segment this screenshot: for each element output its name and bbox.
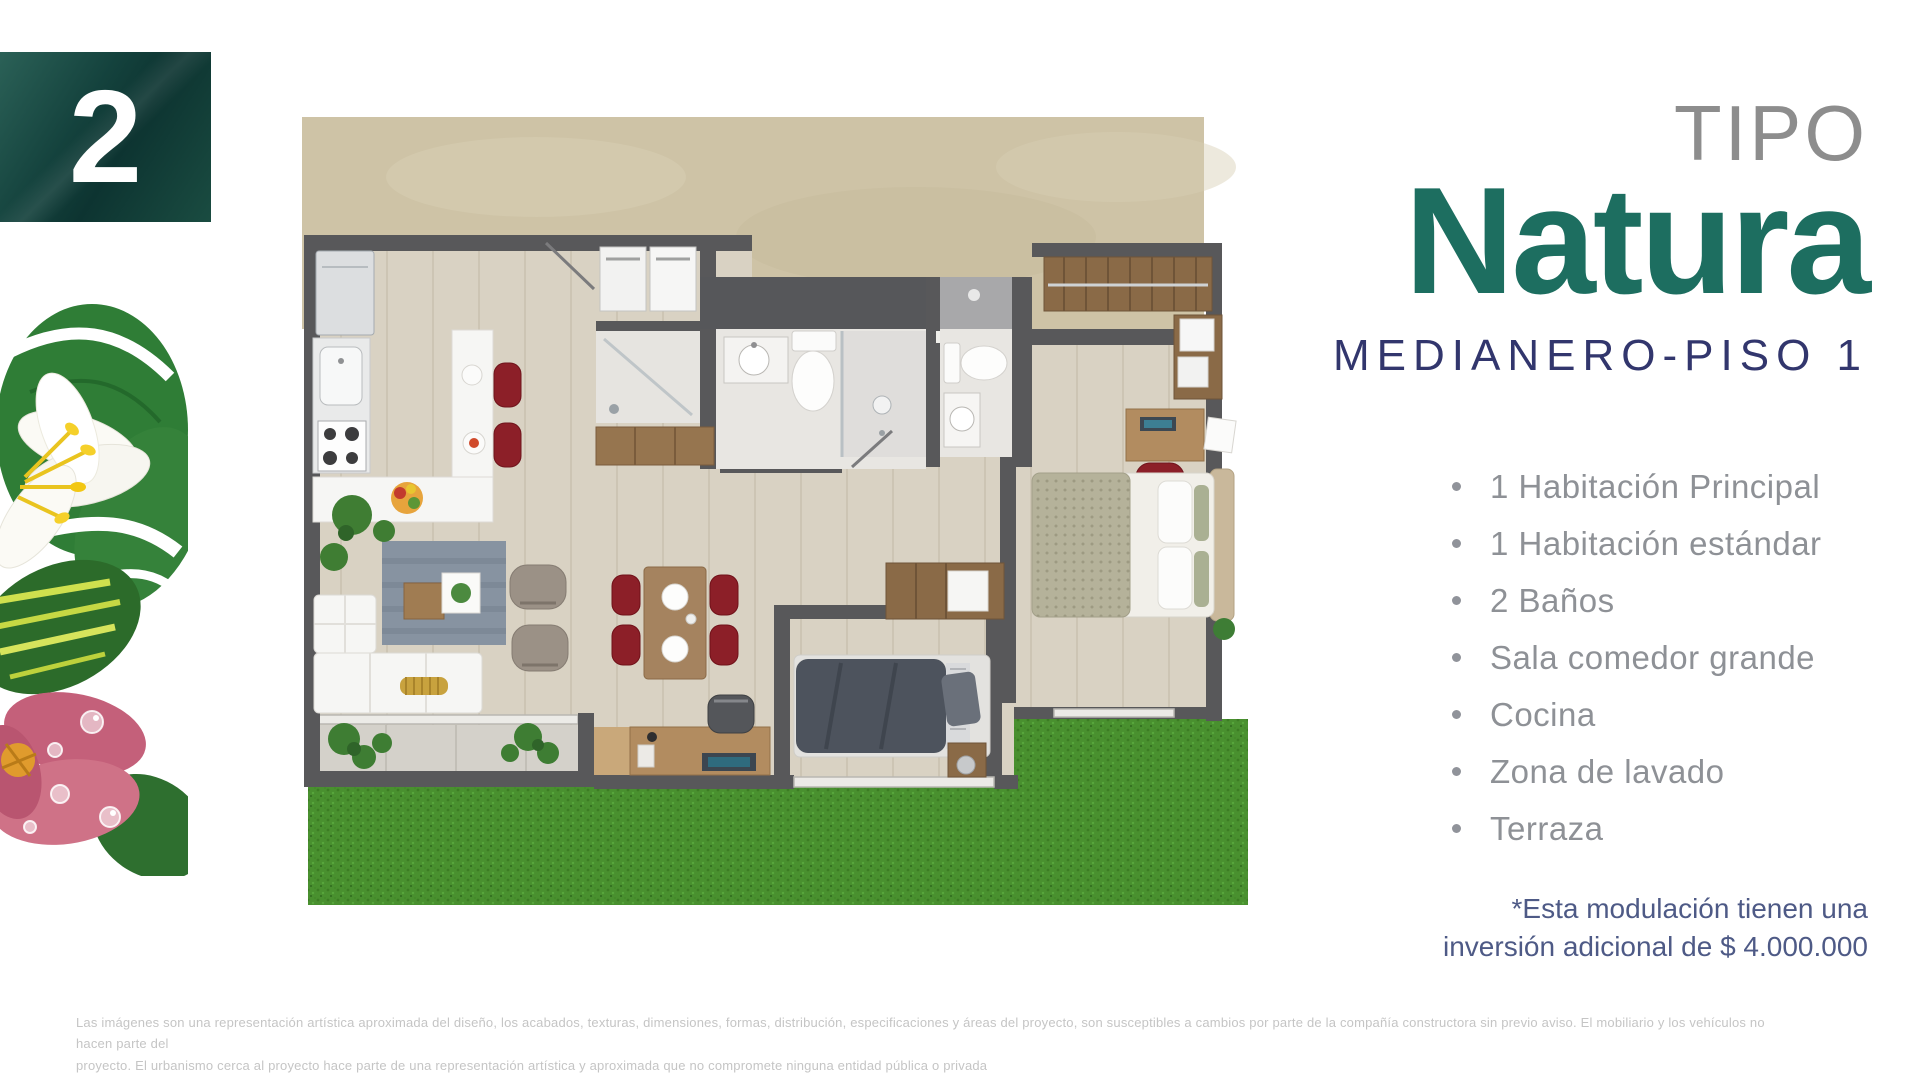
feature-label: 1 Habitación Principal bbox=[1490, 468, 1820, 506]
feature-label: Terraza bbox=[1490, 810, 1604, 848]
slide-number: 2 bbox=[69, 71, 142, 203]
pink-flower bbox=[0, 680, 188, 876]
feature-label: 2 Baños bbox=[1490, 582, 1615, 620]
feature-item: 1 Habitación Principal bbox=[1452, 458, 1822, 515]
note-line-1: *Esta modulación tienen una bbox=[1443, 890, 1868, 928]
feature-label: Cocina bbox=[1490, 696, 1596, 734]
hall-cabinet bbox=[596, 427, 714, 465]
feature-list: 1 Habitación Principal 1 Habitación está… bbox=[1452, 458, 1822, 857]
title-block: TIPO Natura MEDIANERO-PISO 1 bbox=[1333, 94, 1868, 381]
note-line-2: inversión adicional de $ 4.000.000 bbox=[1443, 928, 1868, 966]
flower-illustration bbox=[0, 282, 188, 876]
slide: { "badge": { "number": "2" }, "title": {… bbox=[0, 0, 1920, 1080]
bullet-icon bbox=[1452, 824, 1461, 833]
bullet-icon bbox=[1452, 767, 1461, 776]
bathroom-1 bbox=[716, 329, 926, 469]
feature-item: 2 Baños bbox=[1452, 572, 1822, 629]
disclaimer-line-1: Las imágenes son una representación artí… bbox=[76, 1012, 1776, 1055]
bullet-icon bbox=[1452, 596, 1461, 605]
shower-room bbox=[596, 331, 700, 423]
disclaimer-line-2: proyecto. El urbanismo cerca al proyecto… bbox=[76, 1055, 1776, 1076]
feature-label: Zona de lavado bbox=[1490, 753, 1725, 791]
feature-label: Sala comedor grande bbox=[1490, 639, 1815, 677]
bullet-icon bbox=[1452, 482, 1461, 491]
slide-number-badge: 2 bbox=[0, 52, 211, 222]
title-name: Natura bbox=[1333, 164, 1868, 319]
title-subtitle: MEDIANERO-PISO 1 bbox=[1333, 331, 1868, 381]
floor-plan-image bbox=[296, 117, 1254, 905]
feature-item: 1 Habitación estándar bbox=[1452, 515, 1822, 572]
feature-label: 1 Habitación estándar bbox=[1490, 525, 1822, 563]
entry-niche bbox=[700, 277, 926, 329]
feature-item: Terraza bbox=[1452, 800, 1822, 857]
bullet-icon bbox=[1452, 710, 1461, 719]
bullet-icon bbox=[1452, 653, 1461, 662]
bathroom-2 bbox=[940, 277, 1012, 457]
legal-disclaimer: Las imágenes son una representación artí… bbox=[76, 1012, 1776, 1076]
feature-item: Zona de lavado bbox=[1452, 743, 1822, 800]
feature-item: Sala comedor grande bbox=[1452, 629, 1822, 686]
bullet-icon bbox=[1452, 539, 1461, 548]
investment-note: *Esta modulación tienen una inversión ad… bbox=[1443, 890, 1868, 965]
feature-item: Cocina bbox=[1452, 686, 1822, 743]
